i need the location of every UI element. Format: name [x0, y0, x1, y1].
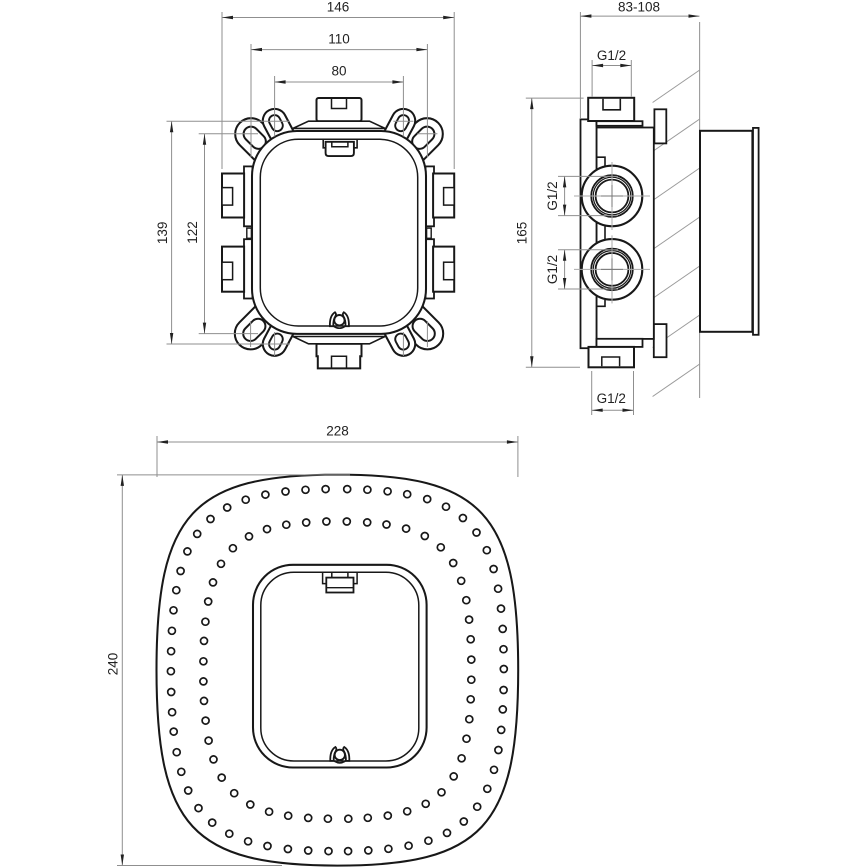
- svg-text:165: 165: [515, 222, 530, 245]
- svg-text:240: 240: [106, 653, 121, 676]
- svg-text:G1/2: G1/2: [545, 181, 560, 210]
- svg-text:228: 228: [326, 424, 349, 439]
- svg-text:83-108: 83-108: [618, 0, 660, 15]
- svg-text:80: 80: [331, 64, 346, 79]
- svg-text:G1/2: G1/2: [597, 391, 626, 406]
- svg-text:146: 146: [327, 0, 350, 15]
- svg-text:110: 110: [328, 32, 350, 47]
- svg-text:139: 139: [155, 222, 170, 245]
- svg-text:122: 122: [185, 221, 200, 244]
- svg-text:G1/2: G1/2: [545, 255, 560, 284]
- svg-text:G1/2: G1/2: [597, 48, 626, 63]
